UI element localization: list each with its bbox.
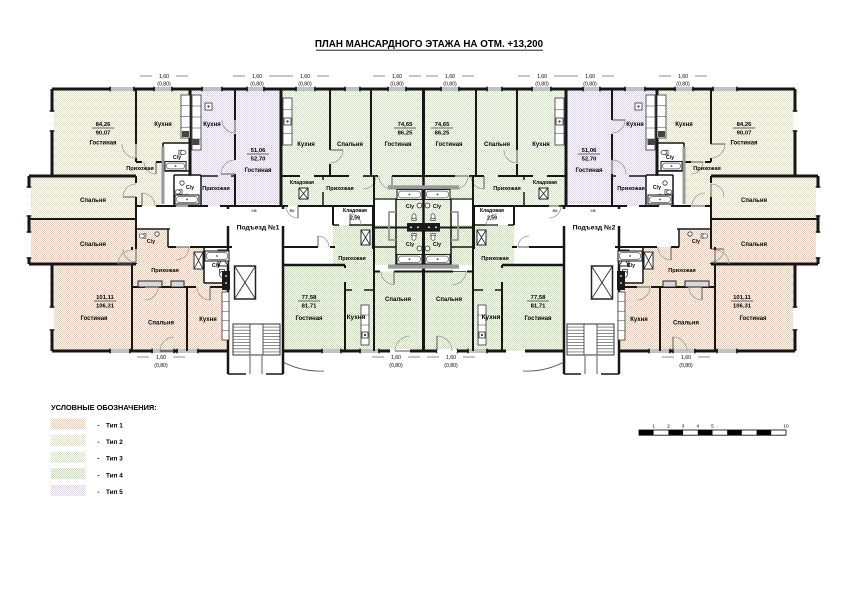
svg-text:1,60: 1,60 <box>252 74 262 80</box>
svg-text:Прихожая: Прихожая <box>668 268 696 274</box>
svg-text:Кухня: Кухня <box>347 314 366 321</box>
svg-text:Спальня: Спальня <box>80 198 106 204</box>
svg-text:ПЛАН МАНСАРДНОГО ЭТАЖА НА ОТМ.: ПЛАН МАНСАРДНОГО ЭТАЖА НА ОТМ. +13,200 <box>315 39 544 50</box>
svg-text:84,26: 84,26 <box>96 122 111 128</box>
svg-text:101,11: 101,11 <box>733 295 751 301</box>
svg-text:1,60: 1,60 <box>159 74 169 80</box>
svg-text:1,60: 1,60 <box>446 355 456 361</box>
svg-text:-: - <box>97 456 99 463</box>
svg-text:Гостиная: Гостиная <box>295 316 323 322</box>
svg-text:5: 5 <box>711 424 714 430</box>
svg-text:Кладовая: Кладовая <box>480 208 504 214</box>
svg-text:Спальня: Спальня <box>436 297 462 303</box>
svg-text:(0,80): (0,80) <box>583 82 597 88</box>
svg-text:1,60: 1,60 <box>392 74 402 80</box>
svg-text:Кладовая: Кладовая <box>343 208 367 214</box>
svg-text:(0,80): (0,80) <box>389 363 403 369</box>
svg-text:(0,80): (0,80) <box>443 82 457 88</box>
svg-text:Подъезд №1: Подъезд №1 <box>237 225 280 232</box>
svg-text:С/у: С/у <box>666 155 674 161</box>
svg-text:1,60: 1,60 <box>300 74 310 80</box>
svg-text:Кухня: Кухня <box>675 122 693 128</box>
svg-text:4: 4 <box>696 424 699 430</box>
svg-text:Прихожая: Прихожая <box>151 268 179 274</box>
svg-text:81,71: 81,71 <box>531 304 546 310</box>
svg-text:Тип 5: Тип 5 <box>106 489 123 496</box>
svg-text:Кухня: Кухня <box>630 317 648 323</box>
svg-text:1,60: 1,60 <box>156 355 166 361</box>
svg-text:Прихожая: Прихожая <box>326 186 354 192</box>
svg-text:С/у: С/у <box>212 263 220 269</box>
svg-text:Кухня: Кухня <box>532 142 550 148</box>
svg-text:2: 2 <box>667 424 670 430</box>
svg-text:1,60: 1,60 <box>537 74 547 80</box>
svg-text:(0,80): (0,80) <box>676 82 690 88</box>
svg-text:Прихожая: Прихожая <box>202 186 230 192</box>
svg-text:2,59: 2,59 <box>487 216 497 222</box>
svg-text:86,25: 86,25 <box>398 131 413 137</box>
svg-text:Гостиная: Гостиная <box>739 316 767 322</box>
svg-text:-: - <box>97 439 99 446</box>
svg-text:Кухня: Кухня <box>154 122 172 128</box>
svg-text:Спальня: Спальня <box>741 198 767 204</box>
svg-text:90,07: 90,07 <box>96 131 111 137</box>
svg-text:51,06: 51,06 <box>582 148 597 154</box>
svg-text:Прихожая: Прихожая <box>693 166 721 172</box>
svg-text:Кухня: Кухня <box>297 142 315 148</box>
svg-text:Кухня: Кухня <box>482 314 501 321</box>
svg-text:св: св <box>251 208 257 213</box>
svg-text:Прихожая: Прихожая <box>493 186 521 192</box>
svg-text:С/у: С/у <box>627 263 635 269</box>
svg-text:101,11: 101,11 <box>96 295 114 301</box>
svg-text:(0,80): (0,80) <box>535 82 549 88</box>
svg-text:С/у: С/у <box>173 155 181 161</box>
svg-text:Гостиная: Гостиная <box>244 168 272 174</box>
svg-text:Гостиная: Гостиная <box>384 142 412 148</box>
svg-text:Подъезд №2: Подъезд №2 <box>573 225 616 232</box>
svg-text:Спальня: Спальня <box>80 242 106 248</box>
svg-text:Гостиная: Гостиная <box>524 316 552 322</box>
svg-text:77,58: 77,58 <box>302 295 317 301</box>
svg-text:С/у: С/у <box>186 185 194 191</box>
svg-text:С/у: С/у <box>147 239 155 245</box>
svg-text:Гостиная: Гостиная <box>80 316 108 322</box>
svg-text:-: - <box>97 489 99 496</box>
svg-text:106,31: 106,31 <box>733 304 752 310</box>
svg-text:С/у: С/у <box>433 242 441 248</box>
svg-text:106,31: 106,31 <box>96 304 115 310</box>
svg-text:Гостиная: Гостиная <box>575 168 603 174</box>
svg-text:2,59: 2,59 <box>350 216 360 222</box>
svg-text:Кладовая: Кладовая <box>290 180 314 186</box>
svg-text:Спальня: Спальня <box>337 142 363 148</box>
svg-text:1,60: 1,60 <box>585 74 595 80</box>
svg-text:51,06: 51,06 <box>251 148 266 154</box>
svg-text:С/у: С/у <box>406 204 414 210</box>
svg-text:вк: вк <box>289 208 295 213</box>
svg-text:81,71: 81,71 <box>302 304 317 310</box>
svg-text:1,60: 1,60 <box>681 355 691 361</box>
svg-text:10: 10 <box>783 424 789 430</box>
svg-text:1,60: 1,60 <box>391 355 401 361</box>
svg-text:86,25: 86,25 <box>435 131 450 137</box>
svg-text:Спальня: Спальня <box>741 242 767 248</box>
svg-text:вк: вк <box>552 208 558 213</box>
svg-text:Прихожая: Прихожая <box>338 256 366 262</box>
svg-text:Гостиная: Гостиная <box>89 141 117 147</box>
svg-text:Тип 2: Тип 2 <box>106 439 123 446</box>
svg-text:Тип 1: Тип 1 <box>106 423 123 430</box>
svg-text:1,60: 1,60 <box>445 74 455 80</box>
svg-text:Кладовая: Кладовая <box>533 180 557 186</box>
svg-text:Спальня: Спальня <box>385 297 411 303</box>
svg-text:Тип 3: Тип 3 <box>106 456 123 463</box>
svg-text:Кухня: Кухня <box>203 122 221 128</box>
svg-text:С/у: С/у <box>692 239 700 245</box>
svg-text:Прихожая: Прихожая <box>481 256 509 262</box>
svg-text:(0,80): (0,80) <box>444 363 458 369</box>
svg-text:-: - <box>97 423 99 430</box>
svg-text:(0,80): (0,80) <box>679 363 693 369</box>
svg-text:Гостиная: Гостиная <box>435 142 463 148</box>
svg-text:-: - <box>97 472 99 479</box>
svg-text:(0,80): (0,80) <box>154 363 168 369</box>
svg-text:(0,80): (0,80) <box>390 82 404 88</box>
svg-text:С/у: С/у <box>433 204 441 210</box>
svg-text:Спальня: Спальня <box>673 321 699 327</box>
svg-text:74,65: 74,65 <box>435 122 450 128</box>
svg-text:Спальня: Спальня <box>148 321 174 327</box>
svg-text:УСЛОВНЫЕ ОБОЗНАЧЕНИЯ:: УСЛОВНЫЕ ОБОЗНАЧЕНИЯ: <box>51 403 157 412</box>
svg-text:Гостиная: Гостиная <box>730 141 758 147</box>
svg-text:52,70: 52,70 <box>251 157 266 163</box>
svg-text:С/у: С/у <box>653 185 661 191</box>
svg-text:С/у: С/у <box>406 242 414 248</box>
svg-text:90,07: 90,07 <box>737 131 752 137</box>
svg-text:Тип 4: Тип 4 <box>106 472 123 479</box>
svg-text:Кухня: Кухня <box>199 317 217 323</box>
svg-text:77,58: 77,58 <box>531 295 546 301</box>
svg-text:1: 1 <box>652 424 655 430</box>
svg-text:Спальня: Спальня <box>484 142 510 148</box>
svg-text:1,60: 1,60 <box>678 74 688 80</box>
svg-text:св: св <box>590 208 596 213</box>
svg-text:Прихожая: Прихожая <box>617 186 645 192</box>
svg-text:84,26: 84,26 <box>737 122 752 128</box>
svg-text:52,70: 52,70 <box>582 157 597 163</box>
svg-text:(0,80): (0,80) <box>157 82 171 88</box>
svg-text:74,65: 74,65 <box>398 122 413 128</box>
svg-text:3: 3 <box>682 424 685 430</box>
svg-text:(0,80): (0,80) <box>250 82 264 88</box>
svg-text:(0,80): (0,80) <box>298 82 312 88</box>
svg-text:Прихожая: Прихожая <box>126 166 154 172</box>
svg-text:Кухня: Кухня <box>626 122 644 128</box>
